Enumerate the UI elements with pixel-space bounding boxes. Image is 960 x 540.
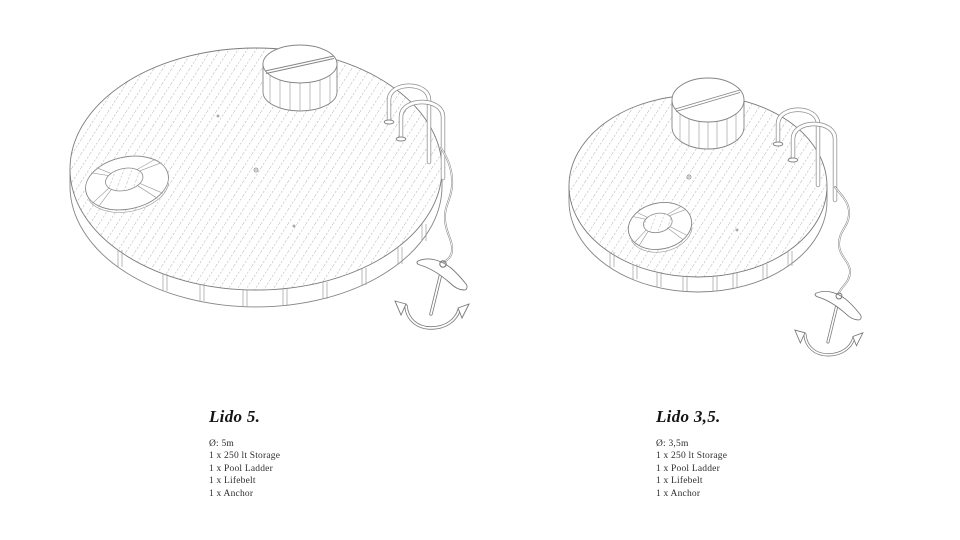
lido-5-illustration (70, 45, 469, 328)
figure-title: Lido 3,5. (656, 408, 886, 427)
spec-line-anchor: 1 x Anchor (656, 488, 886, 501)
spec-line-storage: 1 x 250 lt Storage (209, 450, 439, 463)
spec-line-ladder: 1 x Pool Ladder (656, 463, 886, 476)
lido-3-5-illustration (569, 78, 863, 355)
figure-caption-lido-5: Lido 5. Ø: 5m 1 x 250 lt Storage 1 x Poo… (209, 408, 439, 501)
anchor (795, 291, 863, 355)
figure-title: Lido 5. (209, 408, 439, 427)
product-sheet: Lido 5. Ø: 5m 1 x 250 lt Storage 1 x Poo… (0, 0, 960, 540)
spec-line-diameter: Ø: 5m (209, 438, 439, 451)
storage-box (672, 78, 744, 149)
spec-line-anchor: 1 x Anchor (209, 488, 439, 501)
spec-list: Ø: 5m 1 x 250 lt Storage 1 x Pool Ladder… (209, 438, 439, 501)
anchor-rope (835, 187, 850, 293)
anchor (395, 259, 469, 328)
spec-line-diameter: Ø: 3,5m (656, 438, 886, 451)
spec-line-storage: 1 x 250 lt Storage (656, 450, 886, 463)
spec-line-ladder: 1 x Pool Ladder (209, 463, 439, 476)
spec-list: Ø: 3,5m 1 x 250 lt Storage 1 x Pool Ladd… (656, 438, 886, 501)
spec-line-lifebelt: 1 x Lifebelt (209, 475, 439, 488)
spec-line-lifebelt: 1 x Lifebelt (656, 475, 886, 488)
storage-box (263, 45, 337, 111)
figure-caption-lido-3-5: Lido 3,5. Ø: 3,5m 1 x 250 lt Storage 1 x… (656, 408, 886, 501)
